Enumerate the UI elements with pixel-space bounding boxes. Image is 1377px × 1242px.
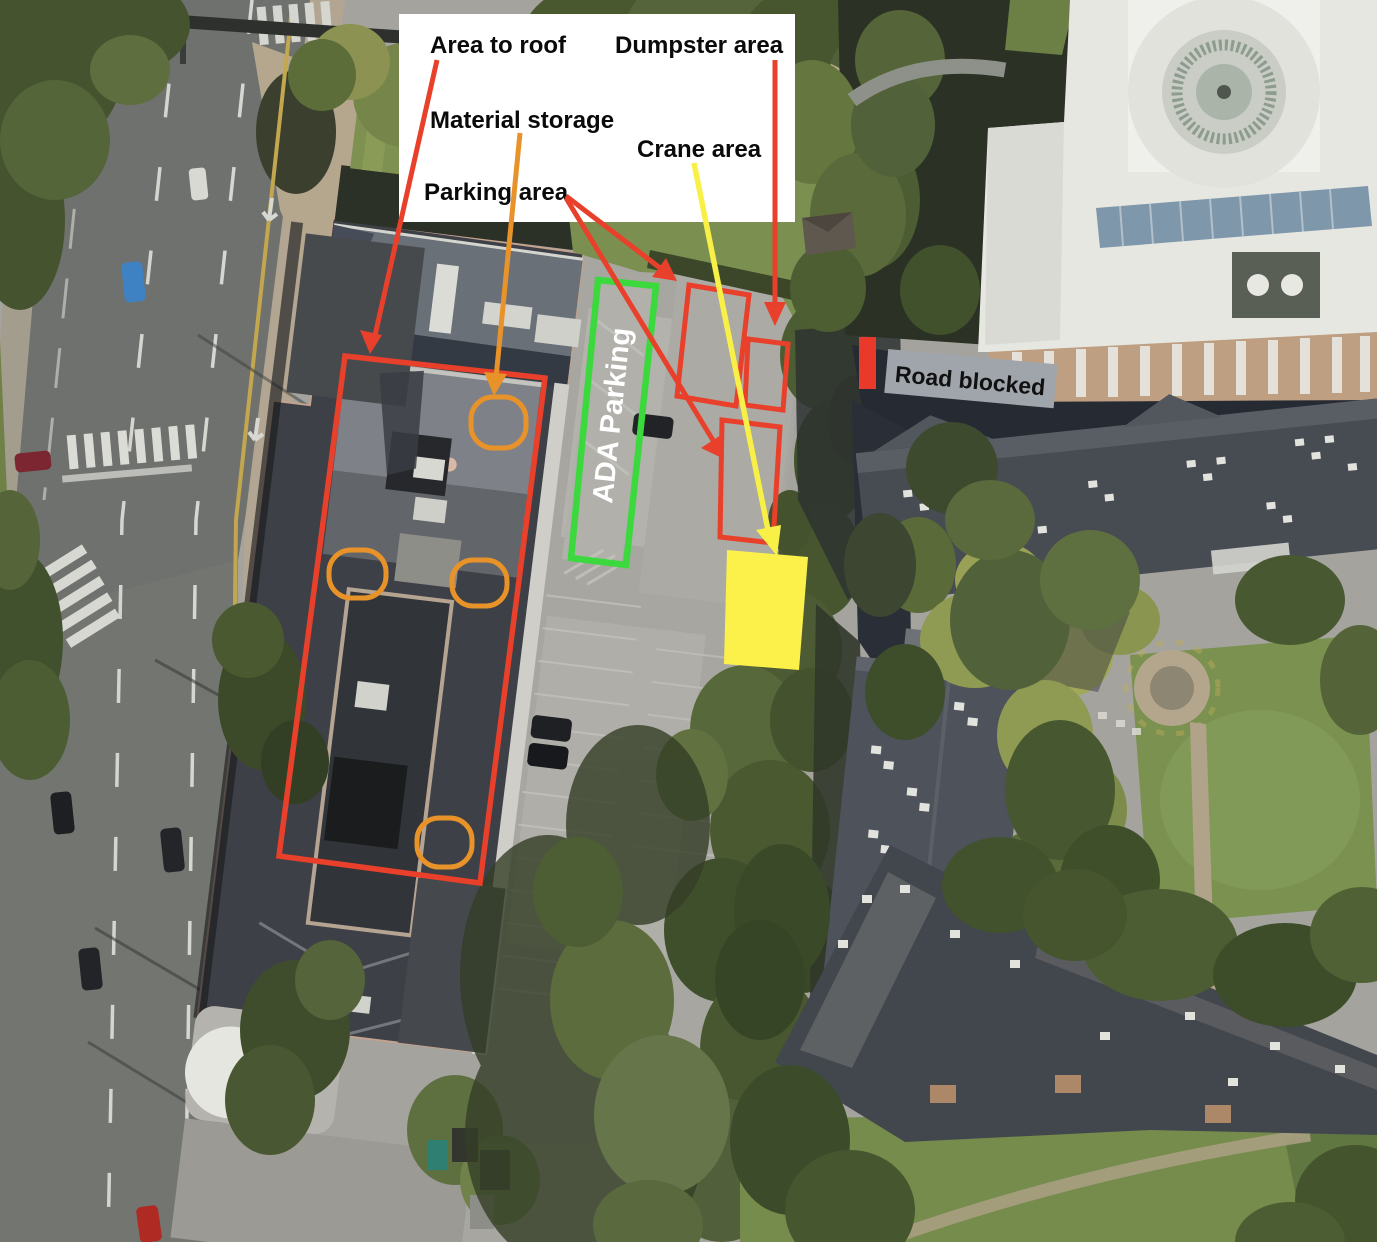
- svg-text:Crane area: Crane area: [637, 136, 762, 163]
- svg-text:Area to roof: Area to roof: [430, 32, 567, 59]
- svg-text:Dumpster area: Dumpster area: [615, 32, 784, 59]
- svg-text:Material storage: Material storage: [430, 107, 614, 134]
- svg-text:Parking area: Parking area: [424, 179, 569, 206]
